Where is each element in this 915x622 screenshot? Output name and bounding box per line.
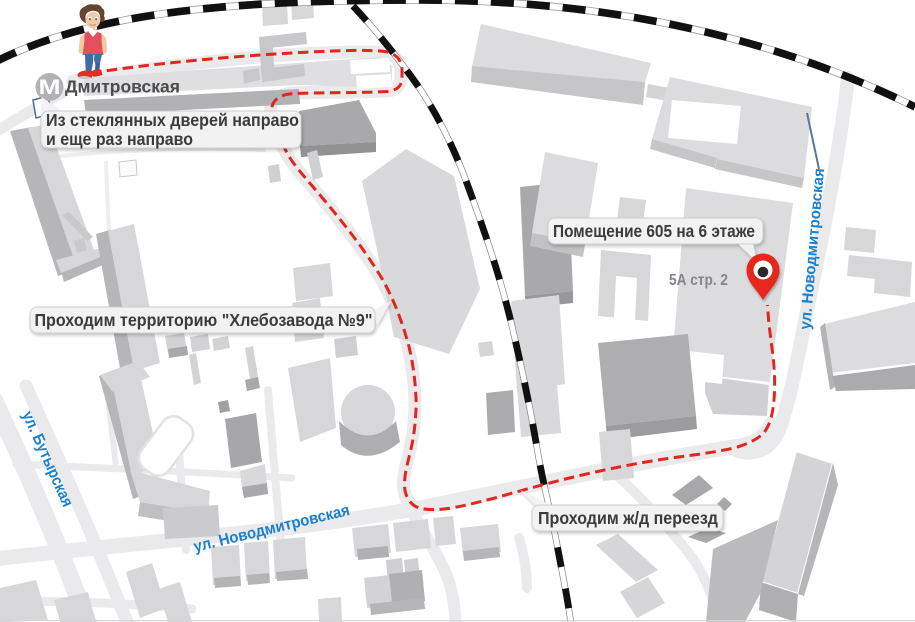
- svg-text:Из стеклянных дверей направо: Из стеклянных дверей направо: [46, 110, 299, 130]
- svg-text:и еще раз направо: и еще раз направо: [46, 129, 193, 149]
- svg-text:Проходим ж/д переезд: Проходим ж/д переезд: [538, 508, 718, 528]
- svg-text:5А стр. 2: 5А стр. 2: [669, 272, 728, 289]
- svg-text:Помещение 605 на 6 этаже: Помещение 605 на 6 этаже: [553, 221, 755, 241]
- svg-text:Проходим территорию "Хлебозаво: Проходим территорию "Хлебозавода №9": [35, 310, 373, 330]
- svg-text:Дмитровская: Дмитровская: [65, 77, 180, 97]
- svg-text:М: М: [39, 76, 61, 99]
